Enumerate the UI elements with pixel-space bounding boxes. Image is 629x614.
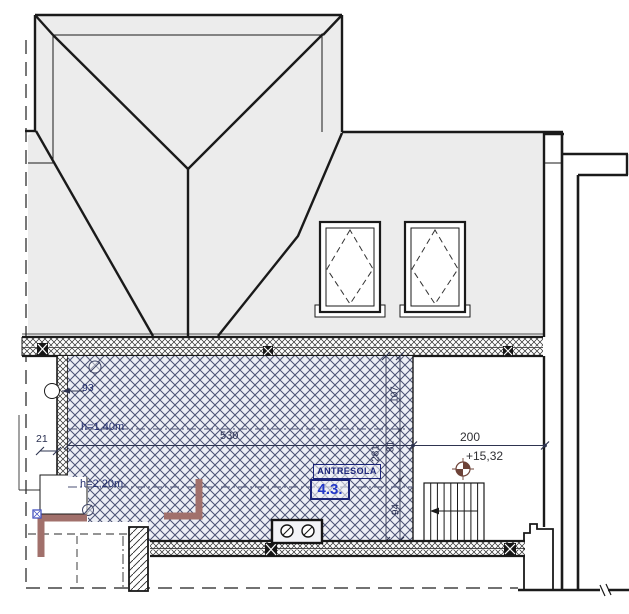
- roof-plan: [28, 15, 545, 337]
- break-marks: [600, 584, 611, 596]
- plan-linework: [0, 0, 629, 614]
- pipe-circle-icon: [45, 384, 60, 399]
- masonry-pier: [129, 527, 148, 591]
- dim-seg-top: 107: [390, 375, 401, 415]
- room-label: ANTRESOLA: [313, 464, 381, 479]
- dim-seg-mid: 81: [386, 427, 397, 467]
- dim-mezzanine-width: 530: [220, 430, 238, 442]
- dim-right-span: 200: [460, 431, 480, 444]
- roof-window-left: [315, 222, 385, 317]
- roof-window-right: [400, 222, 470, 317]
- survey-point-icon: [33, 510, 41, 518]
- mezzanine-hatch: [68, 356, 413, 541]
- height-label-upper: h=1,40m: [81, 421, 124, 433]
- dim-left-offset: 21: [36, 434, 48, 446]
- lower-floor-slab: [150, 541, 525, 556]
- dim-seg-bottom: 94: [391, 490, 402, 530]
- dim-beam-width: 93: [82, 383, 94, 395]
- chimney-block: [524, 524, 553, 590]
- room-number: 4.3.: [310, 479, 350, 500]
- beam-section-box: [272, 520, 322, 543]
- floor-plan-canvas: 93 21 h=1,40m 530 h=2,20m 200 +15,32 107…: [0, 0, 629, 614]
- level-value: +15,32: [466, 450, 503, 463]
- stairs: [424, 483, 484, 541]
- upper-floor-slab: [22, 337, 543, 356]
- height-label-lower: h=2,20m: [80, 478, 123, 490]
